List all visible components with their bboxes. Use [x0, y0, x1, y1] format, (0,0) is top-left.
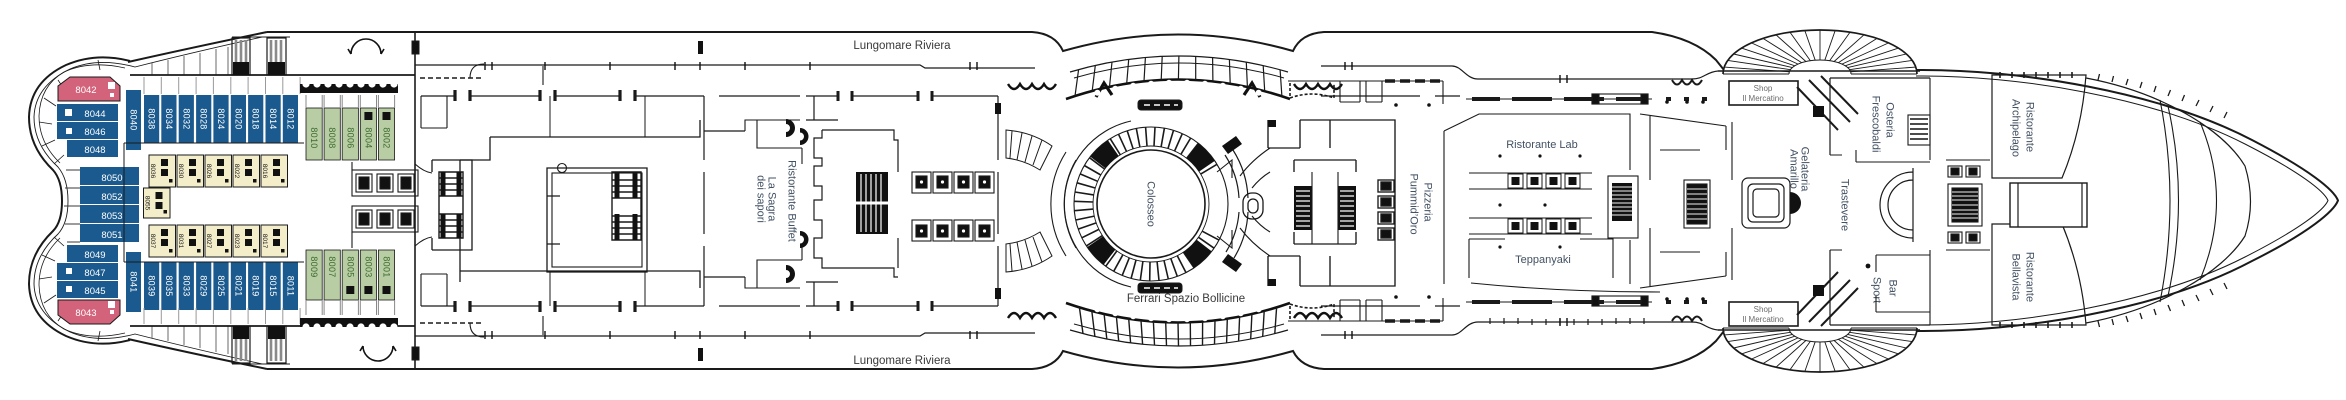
svg-text:Pizzeria: Pizzeria: [1422, 182, 1434, 222]
svg-text:8015: 8015: [268, 275, 278, 296]
svg-text:Teppanyaki: Teppanyaki: [1515, 254, 1571, 266]
svg-text:8010: 8010: [309, 127, 319, 148]
svg-text:8044: 8044: [84, 109, 105, 120]
svg-text:8011: 8011: [285, 276, 295, 297]
svg-text:8034: 8034: [164, 108, 174, 129]
svg-text:Pummid’Oro: Pummid’Oro: [1408, 173, 1420, 234]
svg-text:8017: 8017: [261, 234, 268, 249]
svg-text:8036: 8036: [149, 164, 156, 179]
svg-text:Frescobaldi: Frescobaldi: [1870, 96, 1882, 153]
svg-text:Colosseo: Colosseo: [1145, 181, 1157, 227]
svg-text:8023: 8023: [233, 234, 240, 249]
svg-text:8009: 8009: [309, 256, 319, 277]
svg-text:8012: 8012: [285, 108, 295, 129]
svg-text:8042: 8042: [75, 85, 96, 96]
svg-text:8047: 8047: [84, 268, 105, 279]
svg-text:8002: 8002: [382, 127, 392, 148]
svg-text:8055: 8055: [144, 196, 151, 211]
svg-text:dei sapori: dei sapori: [755, 175, 767, 223]
svg-text:8053: 8053: [101, 211, 122, 222]
svg-text:8003: 8003: [363, 256, 373, 277]
svg-text:8008: 8008: [327, 127, 337, 148]
svg-text:Ristorante Buffet: Ristorante Buffet: [786, 160, 798, 242]
svg-text:Shop: Shop: [1754, 305, 1773, 314]
svg-text:8041: 8041: [129, 271, 139, 292]
svg-text:8043: 8043: [75, 308, 96, 319]
svg-text:8032: 8032: [181, 108, 191, 129]
svg-text:Bar: Bar: [1887, 279, 1899, 296]
svg-text:Ferrari Spazio Bollicine: Ferrari Spazio Bollicine: [1127, 293, 1245, 305]
svg-text:8037: 8037: [149, 234, 156, 249]
svg-text:Archipelago: Archipelago: [2010, 99, 2022, 157]
svg-text:8004: 8004: [363, 127, 373, 148]
svg-text:8052: 8052: [101, 192, 122, 203]
svg-text:8035: 8035: [164, 275, 174, 296]
svg-text:8021: 8021: [233, 275, 243, 296]
svg-text:8048: 8048: [84, 145, 105, 156]
svg-text:Il Mercatino: Il Mercatino: [1742, 315, 1784, 324]
svg-text:8024: 8024: [216, 108, 226, 129]
svg-text:8049: 8049: [84, 250, 105, 261]
svg-text:8001: 8001: [382, 256, 392, 277]
svg-text:8025: 8025: [216, 275, 226, 296]
svg-text:8022: 8022: [233, 164, 240, 179]
svg-text:8030: 8030: [177, 164, 184, 179]
svg-text:8031: 8031: [177, 234, 184, 249]
svg-text:8046: 8046: [84, 127, 105, 138]
svg-text:8038: 8038: [147, 108, 157, 129]
svg-text:8016: 8016: [261, 164, 268, 179]
svg-text:8006: 8006: [345, 127, 355, 148]
svg-text:Bellavista: Bellavista: [2010, 253, 2022, 301]
svg-text:8028: 8028: [199, 108, 209, 129]
svg-text:8039: 8039: [147, 275, 157, 296]
svg-text:Trastevere: Trastevere: [1839, 179, 1851, 231]
svg-text:Il Mercatino: Il Mercatino: [1742, 94, 1784, 103]
svg-text:Shop: Shop: [1754, 84, 1773, 93]
svg-text:8045: 8045: [84, 286, 105, 297]
svg-text:8019: 8019: [251, 275, 261, 296]
svg-text:Ristorante Lab: Ristorante Lab: [1506, 139, 1578, 151]
svg-text:8033: 8033: [181, 275, 191, 296]
svg-text:Ristorante: Ristorante: [2024, 102, 2036, 152]
svg-text:8040: 8040: [129, 109, 139, 130]
svg-text:Lungomare Riviera: Lungomare Riviera: [853, 40, 951, 52]
svg-text:8020: 8020: [233, 108, 243, 129]
svg-text:8018: 8018: [251, 108, 261, 129]
svg-text:Ristorante: Ristorante: [2024, 252, 2036, 302]
svg-text:8005: 8005: [345, 256, 355, 277]
svg-text:8026: 8026: [205, 164, 212, 179]
svg-text:8051: 8051: [101, 230, 122, 241]
svg-text:8050: 8050: [101, 173, 122, 184]
svg-text:8027: 8027: [205, 234, 212, 249]
svg-text:Lungomare Riviera: Lungomare Riviera: [853, 355, 951, 367]
svg-text:8007: 8007: [327, 256, 337, 277]
svg-text:8029: 8029: [199, 275, 209, 296]
svg-text:8014: 8014: [268, 108, 278, 129]
svg-text:Osteria: Osteria: [1884, 102, 1896, 138]
svg-text:Amarillo: Amarillo: [1788, 149, 1800, 189]
